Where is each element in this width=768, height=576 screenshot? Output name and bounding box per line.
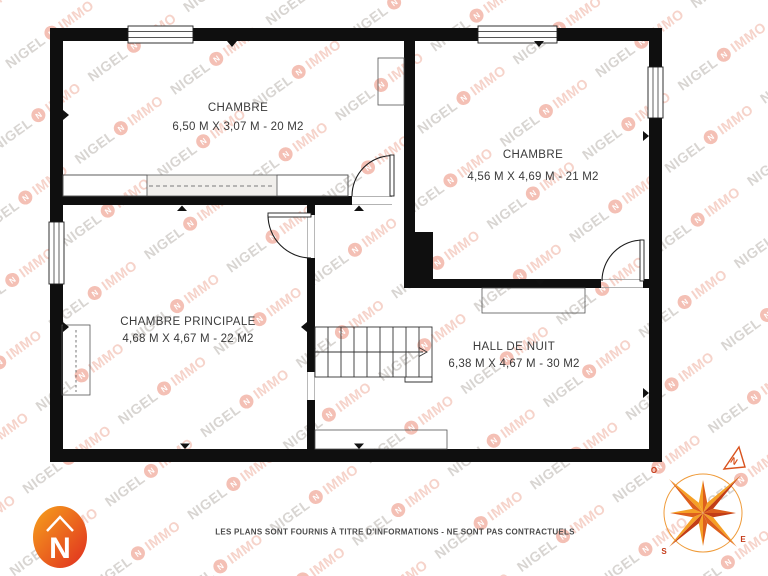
wardrobe bbox=[378, 58, 404, 105]
wall bbox=[404, 279, 601, 288]
room-label-hall-de-nuit: HALL DE NUIT bbox=[473, 341, 555, 353]
wall bbox=[307, 400, 315, 449]
compass-star bbox=[669, 476, 740, 547]
door-leaf bbox=[390, 155, 394, 196]
room-dimensions-chambre-2: 4,56 M X 4,69 M - 21 M2 bbox=[467, 171, 598, 183]
cabinet bbox=[315, 430, 447, 449]
wardrobe bbox=[62, 325, 90, 395]
wall bbox=[56, 196, 352, 205]
windows bbox=[49, 26, 663, 284]
agency-logo: N bbox=[28, 500, 94, 572]
stairs-rail bbox=[405, 377, 432, 382]
exterior-walls bbox=[50, 28, 662, 462]
window bbox=[128, 26, 193, 43]
door bbox=[602, 240, 644, 281]
wall bbox=[50, 449, 662, 462]
door-leaf bbox=[268, 213, 311, 217]
room-dimensions-chambre-principale: 4,68 M X 4,67 M - 22 M2 bbox=[122, 333, 253, 345]
staircase bbox=[315, 327, 432, 382]
cabinet bbox=[482, 288, 585, 313]
door bbox=[268, 213, 311, 258]
compass-east-label: E bbox=[740, 535, 746, 544]
window bbox=[648, 67, 663, 118]
plan-disclaimer: LES PLANS SONT FOURNIS À TITRE D’INFORMA… bbox=[215, 528, 574, 537]
room-label-chambre-1: CHAMBRE bbox=[208, 102, 268, 114]
wall bbox=[404, 41, 415, 232]
window bbox=[478, 26, 557, 43]
window bbox=[49, 222, 64, 284]
interior-walls bbox=[56, 41, 651, 449]
room-label-chambre-principale: CHAMBRE PRINCIPALE bbox=[120, 316, 255, 328]
north-arrow-icon: N bbox=[724, 447, 745, 469]
door bbox=[352, 155, 394, 196]
door-leaf bbox=[640, 240, 644, 281]
door-arc bbox=[352, 156, 392, 197]
furniture bbox=[62, 58, 585, 449]
room-label-chambre-2: CHAMBRE bbox=[503, 149, 563, 161]
built-in-closet bbox=[63, 175, 348, 196]
dimension-ticks bbox=[63, 41, 649, 449]
door-arc bbox=[602, 240, 643, 281]
compass-south-label: S bbox=[661, 547, 667, 556]
compass-rose: N O S E bbox=[640, 438, 768, 568]
wall bbox=[307, 258, 315, 372]
door-arc bbox=[268, 215, 311, 258]
compass-west-label: O bbox=[651, 466, 657, 475]
floor-plan-page: NIGELNIMMONIGELNIMMONIGELNIMMONIGELNIMMO… bbox=[0, 0, 768, 576]
logo-letter: N bbox=[49, 532, 71, 565]
room-dimensions-hall-de-nuit: 6,38 M X 4,67 M - 30 M2 bbox=[448, 358, 579, 370]
room-dimensions-chambre-1: 6,50 M X 3,07 M - 20 M2 bbox=[172, 121, 303, 133]
